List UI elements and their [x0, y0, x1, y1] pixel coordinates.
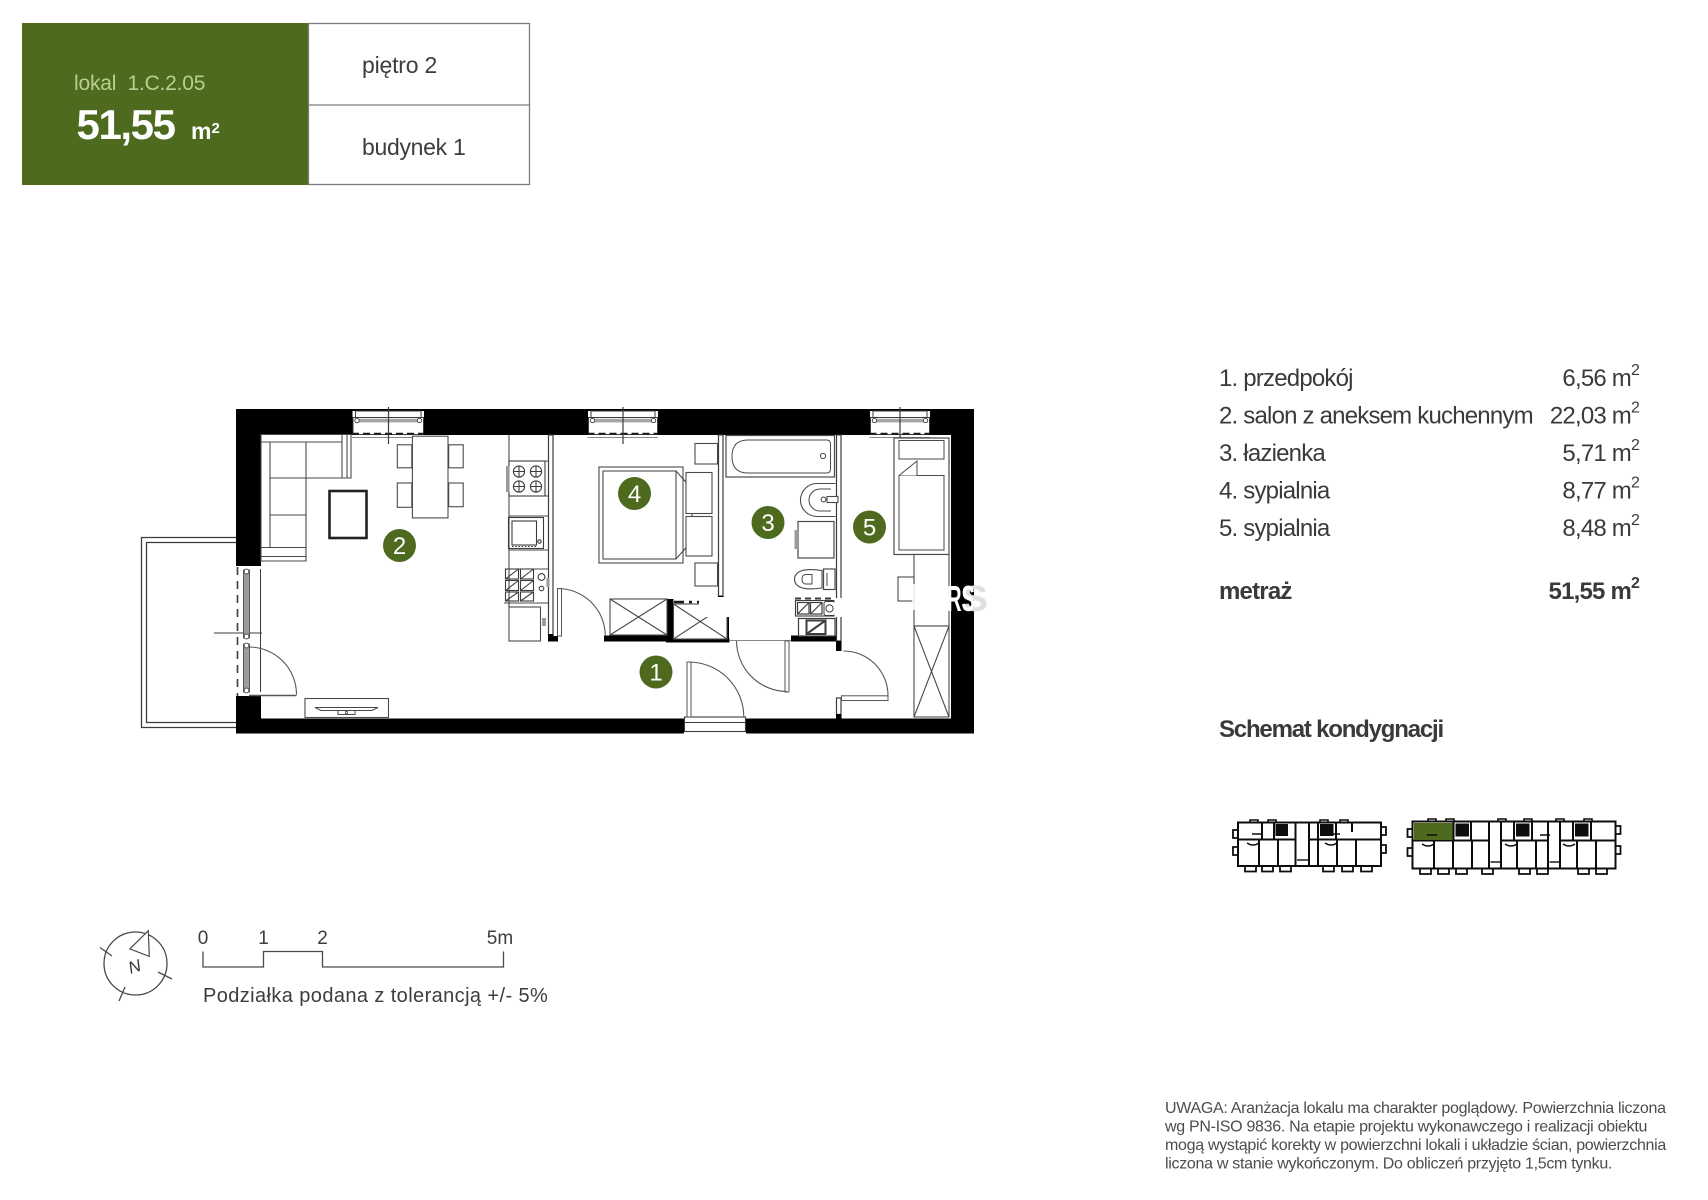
svg-text:metraż: metraż — [1219, 578, 1292, 605]
svg-text:2: 2 — [1631, 575, 1640, 592]
svg-text:2: 2 — [393, 533, 406, 560]
svg-text:piętro 2: piętro 2 — [362, 52, 437, 78]
svg-text:2: 2 — [317, 928, 328, 949]
svg-text:2: 2 — [1631, 512, 1640, 529]
svg-text:lokal 1.C.2.05: lokal 1.C.2.05 — [74, 72, 205, 95]
svg-text:RS: RS — [947, 578, 975, 619]
svg-text:1: 1 — [649, 660, 662, 687]
svg-text:5m: 5m — [487, 928, 513, 949]
svg-text:liczona w stanie wykończonym.: liczona w stanie wykończonym. Do oblicze… — [1165, 1156, 1612, 1173]
svg-text:mogą wystąpić korekty w powier: mogą wystąpić korekty w powierzchni loka… — [1165, 1137, 1666, 1154]
svg-text:8,77 m: 8,77 m — [1562, 478, 1631, 505]
svg-text:1. przedpokój: 1. przedpokój — [1219, 365, 1353, 392]
svg-text:51,55 m: 51,55 m — [1549, 578, 1631, 605]
svg-text:6,56 m: 6,56 m — [1562, 365, 1631, 392]
svg-text:4. sypialnia: 4. sypialnia — [1219, 478, 1331, 505]
svg-text:2: 2 — [1631, 400, 1640, 417]
svg-text:51,55: 51,55 — [77, 101, 176, 148]
svg-text:8,48 m: 8,48 m — [1562, 515, 1631, 542]
svg-text:2: 2 — [1631, 437, 1640, 454]
svg-text:5: 5 — [863, 515, 876, 542]
svg-text:2: 2 — [212, 120, 220, 137]
svg-text:UWAGA: Aranżacja lokalu ma cha: UWAGA: Aranżacja lokalu ma charakter pog… — [1165, 1100, 1666, 1117]
svg-text:Podziałka podana z tolerancją: Podziałka podana z tolerancją +/- 5% — [203, 985, 548, 1007]
svg-text:22,03 m: 22,03 m — [1550, 403, 1631, 430]
svg-text:m: m — [191, 118, 211, 144]
svg-text:wg PN-ISO 9836. Na etapie proj: wg PN-ISO 9836. Na etapie projektu wykon… — [1164, 1119, 1647, 1136]
svg-text:5. sypialnia: 5. sypialnia — [1219, 515, 1331, 542]
svg-text:3. łazienka: 3. łazienka — [1219, 440, 1326, 467]
svg-text:2: 2 — [1631, 362, 1640, 379]
svg-text:2. salon z aneksem kuchennym: 2. salon z aneksem kuchennym — [1219, 403, 1533, 430]
svg-text:Schemat kondygnacji: Schemat kondygnacji — [1219, 716, 1443, 743]
svg-text:4: 4 — [628, 481, 641, 508]
svg-text:budynek 1: budynek 1 — [362, 134, 465, 160]
svg-text:3: 3 — [761, 510, 774, 537]
svg-text:0: 0 — [198, 928, 209, 949]
svg-text:1: 1 — [258, 928, 269, 949]
svg-text:2: 2 — [1631, 475, 1640, 492]
svg-text:5,71 m: 5,71 m — [1562, 440, 1631, 467]
